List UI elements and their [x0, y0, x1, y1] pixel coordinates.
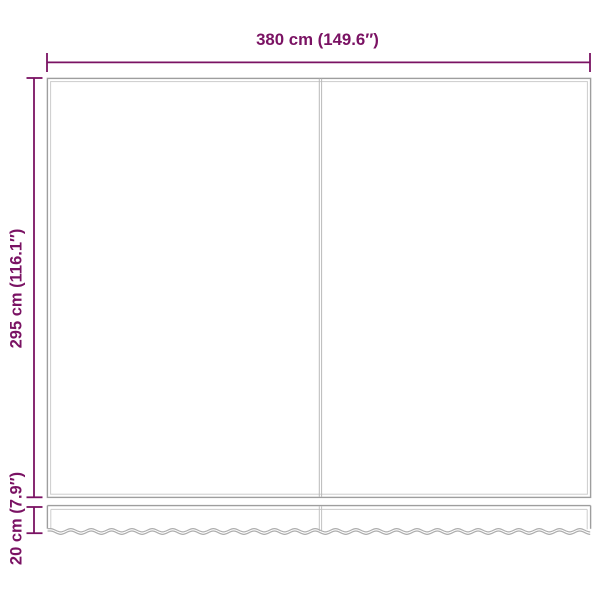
svg-text:380 cm (149.6″): 380 cm (149.6″)	[256, 30, 379, 49]
svg-text:295 cm (116.1″): 295 cm (116.1″)	[8, 229, 26, 349]
svg-text:20 cm (7.9″): 20 cm (7.9″)	[8, 472, 26, 565]
